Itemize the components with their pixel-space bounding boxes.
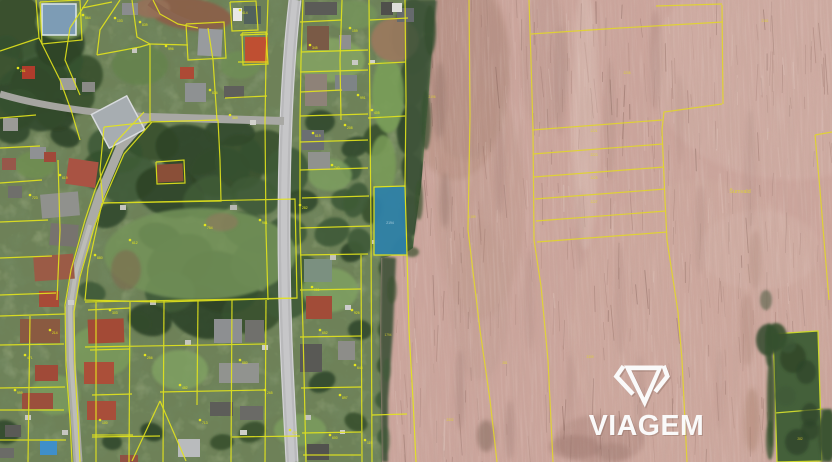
svg-text:880: 880 — [242, 361, 248, 365]
svg-text:713: 713 — [202, 421, 208, 425]
svg-text:991: 991 — [360, 96, 366, 100]
svg-text:405: 405 — [374, 111, 380, 115]
svg-text:2221: 2221 — [590, 129, 597, 133]
svg-text:261: 261 — [20, 69, 26, 73]
svg-text:2194: 2194 — [386, 221, 394, 225]
svg-text:431: 431 — [292, 431, 298, 435]
svg-text:2302: 2302 — [446, 418, 453, 422]
svg-text:723: 723 — [32, 196, 38, 200]
svg-text:2161: 2161 — [761, 19, 768, 23]
svg-text:652: 652 — [322, 331, 328, 335]
svg-text:281: 281 — [502, 361, 508, 365]
svg-text:103: 103 — [117, 19, 123, 23]
svg-text:282: 282 — [797, 437, 803, 441]
svg-text:282: 282 — [302, 206, 308, 210]
svg-text:265: 265 — [267, 391, 273, 395]
svg-text:836: 836 — [212, 91, 218, 95]
svg-text:2227: 2227 — [590, 200, 597, 204]
svg-text:482: 482 — [182, 386, 188, 390]
svg-text:2225: 2225 — [590, 176, 597, 180]
svg-text:VIAGEM: VIAGEM — [589, 410, 704, 442]
svg-text:414: 414 — [242, 11, 248, 15]
svg-text:600: 600 — [332, 436, 338, 440]
svg-text:471: 471 — [27, 356, 33, 360]
svg-text:754: 754 — [207, 226, 213, 230]
svg-text:Šumvald: Šumvald — [729, 188, 750, 195]
svg-text:2309: 2309 — [586, 355, 593, 359]
svg-text:214: 214 — [52, 331, 58, 335]
svg-text:2196: 2196 — [428, 95, 435, 99]
svg-text:961: 961 — [262, 221, 268, 225]
svg-text:345: 345 — [312, 46, 318, 50]
svg-text:208: 208 — [347, 126, 353, 130]
svg-text:119: 119 — [367, 441, 373, 445]
svg-text:643: 643 — [357, 366, 363, 370]
svg-text:2208: 2208 — [623, 71, 630, 75]
svg-text:839: 839 — [142, 23, 148, 27]
svg-text:612: 612 — [132, 241, 138, 245]
svg-text:880: 880 — [97, 256, 103, 260]
svg-text:1794: 1794 — [384, 333, 391, 337]
svg-text:740: 740 — [334, 166, 340, 170]
svg-text:2223: 2223 — [590, 153, 597, 157]
svg-text:256: 256 — [147, 356, 153, 360]
svg-text:159: 159 — [352, 29, 358, 33]
svg-text:2199: 2199 — [468, 215, 475, 219]
svg-text:369: 369 — [232, 116, 238, 120]
svg-text:897: 897 — [342, 396, 348, 400]
svg-text:996: 996 — [168, 47, 174, 51]
svg-text:619: 619 — [315, 134, 321, 138]
svg-text:619: 619 — [62, 176, 68, 180]
svg-text:999: 999 — [17, 391, 23, 395]
svg-text:564: 564 — [85, 16, 91, 20]
svg-text:926: 926 — [354, 311, 360, 315]
svg-text:100: 100 — [102, 421, 108, 425]
svg-text:303: 303 — [112, 311, 118, 315]
svg-text:951: 951 — [314, 288, 320, 292]
